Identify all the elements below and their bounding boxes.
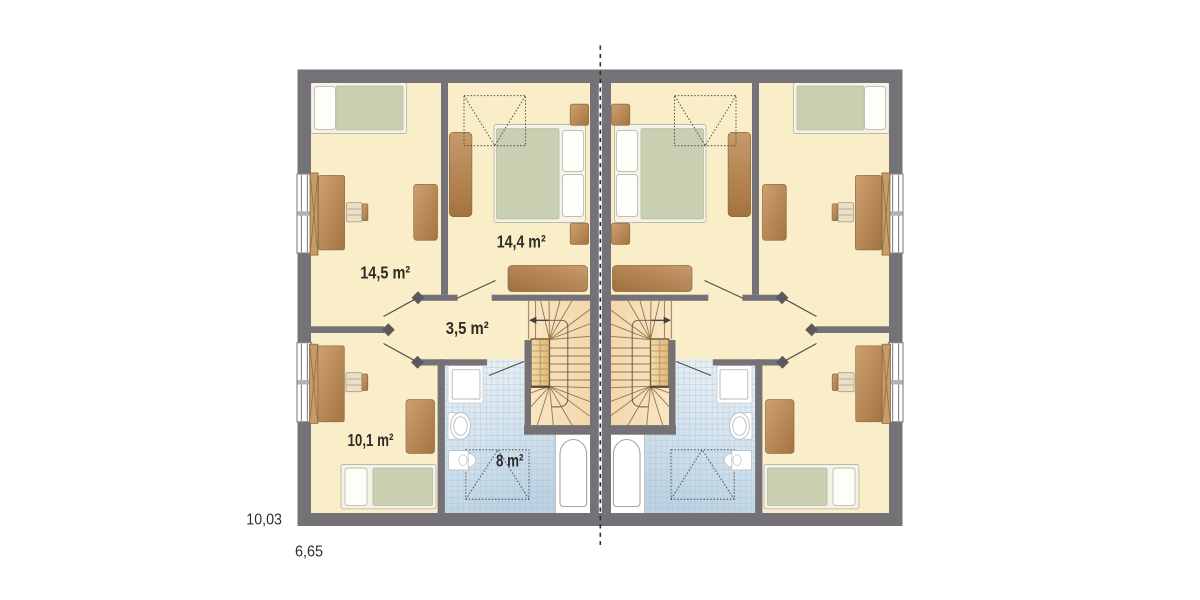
svg-text:3,5 m²: 3,5 m² xyxy=(446,318,489,338)
svg-text:10,1 m²: 10,1 m² xyxy=(348,430,394,450)
svg-text:14,5 m²: 14,5 m² xyxy=(360,263,410,283)
svg-text:6,65: 6,65 xyxy=(295,544,323,561)
svg-text:14,4 m²: 14,4 m² xyxy=(497,232,546,252)
svg-text:8 m²: 8 m² xyxy=(496,451,524,471)
svg-text:10,03: 10,03 xyxy=(246,512,282,529)
